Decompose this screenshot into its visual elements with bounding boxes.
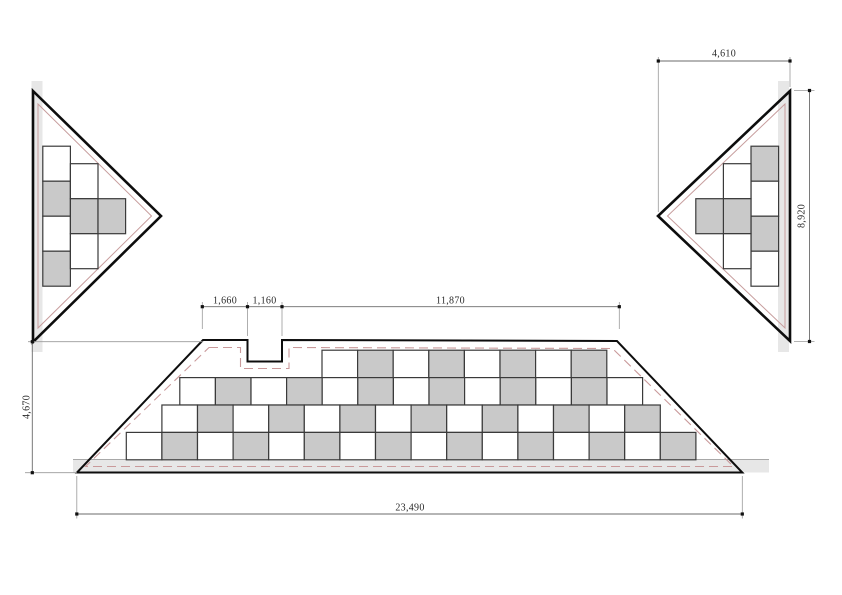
dim-label-stage-height: 4,670 [21, 395, 32, 419]
dim-label-right-wing-height: 8,920 [796, 204, 807, 228]
dim-label-notch-offset: 1,660 [213, 295, 237, 306]
dim-label-notch-width: 1,160 [253, 295, 277, 306]
dim-label-top-edge-width: 11,870 [436, 295, 465, 306]
dim-label-right-wing-width: 4,610 [712, 49, 736, 60]
dim-label-bottom-width: 23,490 [395, 503, 424, 514]
cad-stage-plan-drawing: 4,610 8,920 4,670 1,660 1,160 11,870 23,… [0, 0, 842, 595]
